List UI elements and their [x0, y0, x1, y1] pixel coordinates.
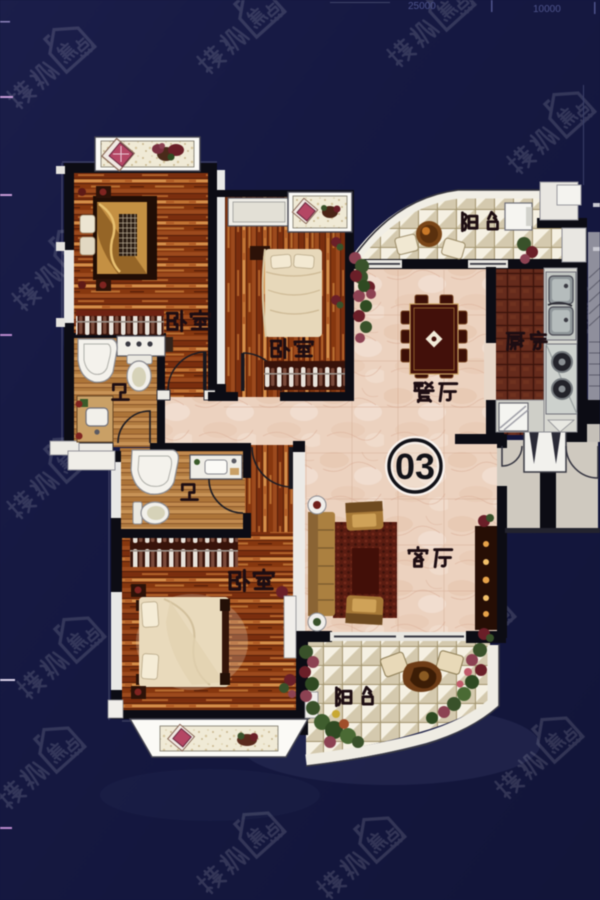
svg-text:10000: 10000	[533, 4, 561, 15]
svg-text:03: 03	[395, 446, 435, 487]
svg-text:25000: 25000	[408, 1, 436, 12]
